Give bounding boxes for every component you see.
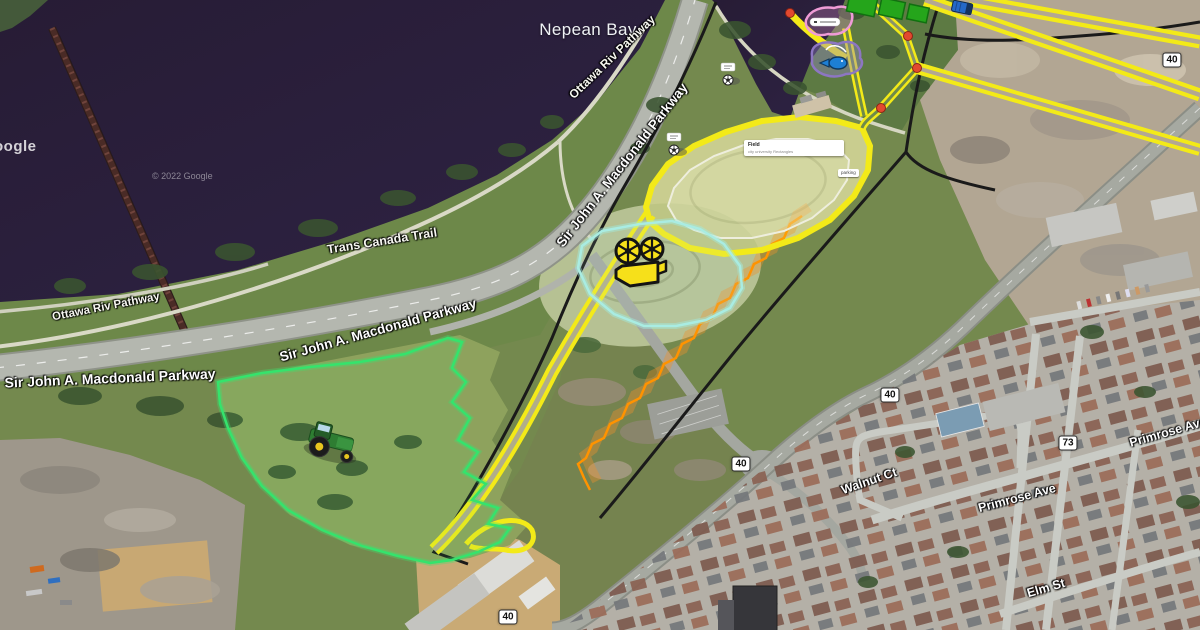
route-badge-40-intersection: 40 xyxy=(731,457,750,472)
parking-tag[interactable]: parking xyxy=(838,169,859,177)
route-badge-40-mid: 40 xyxy=(880,388,899,403)
route-badge-40-top: 40 xyxy=(1162,53,1181,68)
route-badge-73: 73 xyxy=(1058,436,1077,451)
satellite-map[interactable]: Nepean Bay Ottawa Riv Pathway Sir John A… xyxy=(0,0,1200,630)
wetland-label-pill xyxy=(810,18,840,26)
copyright-watermark: © 2022 Google xyxy=(152,171,213,181)
fishing-pond-outline[interactable] xyxy=(812,42,862,76)
field-info-subtitle: city university Rectangles xyxy=(748,149,840,154)
pink-area-outline[interactable] xyxy=(806,7,853,35)
google-watermark-partial: oogle xyxy=(0,138,37,155)
soccer-ball-icon xyxy=(723,75,733,85)
tower-building xyxy=(733,586,777,630)
field-info-card[interactable]: Field city university Rectangles xyxy=(744,140,844,156)
map-canvas xyxy=(0,0,1200,630)
route-badge-40-bottom: 40 xyxy=(498,610,517,625)
soccer-ball-icon xyxy=(669,145,679,155)
